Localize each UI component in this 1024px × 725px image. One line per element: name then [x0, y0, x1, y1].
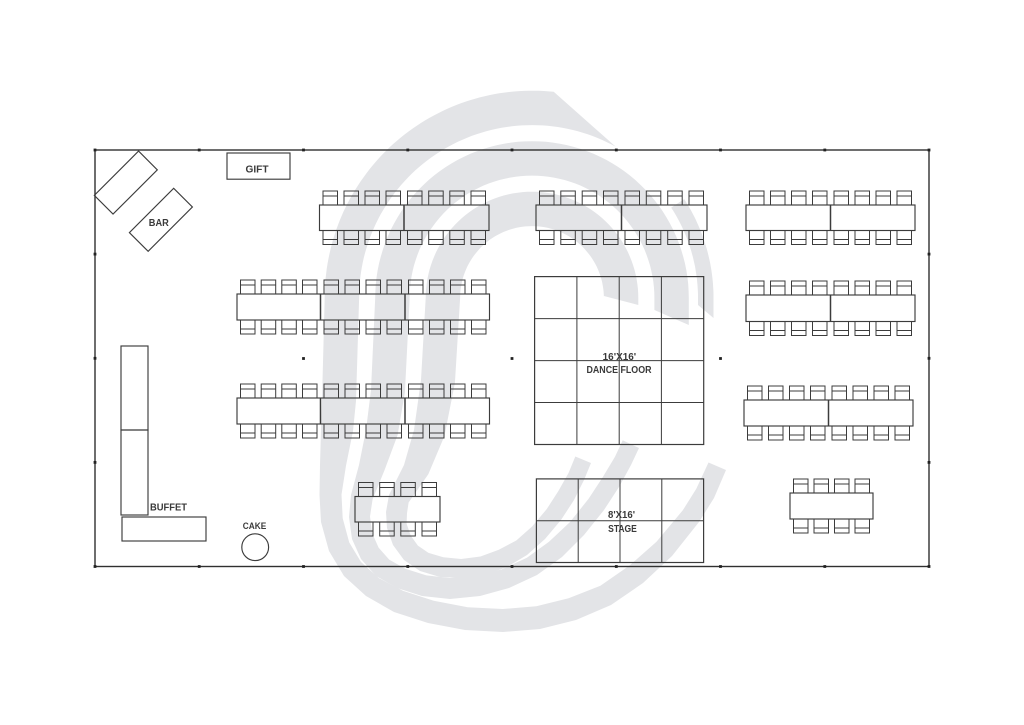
svg-text:BAR: BAR: [149, 218, 169, 229]
svg-text:DANCE FLOOR: DANCE FLOOR: [587, 365, 652, 376]
svg-text:BUFFET: BUFFET: [150, 503, 188, 514]
svg-text:GIFT: GIFT: [246, 165, 270, 176]
svg-text:8'X16': 8'X16': [608, 510, 635, 521]
svg-text:16'X16': 16'X16': [603, 352, 637, 363]
svg-text:STAGE: STAGE: [608, 524, 637, 535]
svg-text:CAKE: CAKE: [243, 521, 267, 532]
